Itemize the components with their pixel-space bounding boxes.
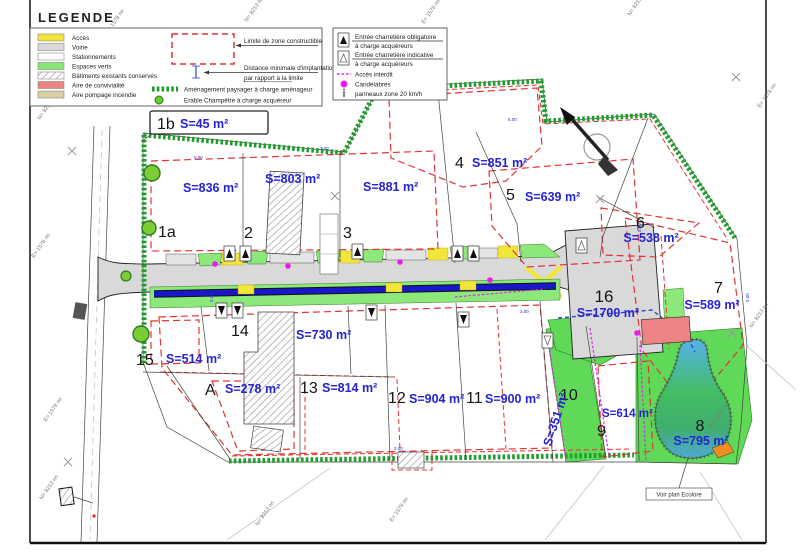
svg-text:à charge acquéreurs: à charge acquéreurs bbox=[355, 61, 413, 68]
svg-text:S=795 m²: S=795 m² bbox=[673, 434, 728, 448]
svg-text:Entrée charretière indicative: Entrée charretière indicative bbox=[355, 52, 434, 59]
candelabre-icon bbox=[487, 277, 493, 283]
grid-cross-icon bbox=[732, 73, 740, 81]
legend: LEGENDE Accès Voirie Stationnements Espa… bbox=[30, 10, 447, 106]
svg-text:5.00: 5.00 bbox=[209, 293, 214, 302]
svg-text:7: 7 bbox=[714, 280, 723, 297]
lot-label-12: 12 S=904 m² bbox=[388, 390, 464, 407]
legend-swatch-convivialite: Aire de convivialité bbox=[38, 82, 125, 90]
entry-obligatoire-icon bbox=[224, 246, 235, 261]
svg-text:S=1700 m²: S=1700 m² bbox=[577, 306, 639, 320]
svg-text:Distance minimale d'implantati: Distance minimale d'implantation bbox=[244, 65, 336, 72]
svg-text:Candélabres: Candélabres bbox=[355, 82, 391, 89]
svg-text:S=639 m²: S=639 m² bbox=[525, 190, 580, 204]
svg-text:3.00: 3.00 bbox=[320, 146, 329, 151]
offsite-building-1 bbox=[73, 302, 88, 320]
svg-text:Erable Champêtre à charge acqu: Erable Champêtre à charge acquéreur bbox=[184, 98, 291, 105]
entry-obligatoire-icon bbox=[232, 303, 243, 318]
candelabre-icon bbox=[397, 259, 403, 265]
building-lot3 bbox=[320, 214, 338, 274]
svg-text:Aire de convivialité: Aire de convivialité bbox=[72, 83, 125, 90]
svg-text:5: 5 bbox=[506, 187, 515, 204]
svg-text:3.00: 3.00 bbox=[520, 309, 529, 314]
svg-text:S=836 m²: S=836 m² bbox=[183, 181, 238, 195]
svg-text:Stationnements: Stationnements bbox=[72, 54, 116, 61]
svg-text:N= 8213 nn: N= 8213 nn bbox=[244, 0, 265, 23]
svg-text:4: 4 bbox=[455, 155, 464, 172]
svg-text:1a: 1a bbox=[158, 224, 176, 241]
legend-swatch-pompage: Aire pompage incendie bbox=[38, 91, 137, 99]
svg-text:N= 8213 nn: N= 8213 nn bbox=[749, 302, 770, 329]
svg-text:S=538 m²: S=538 m² bbox=[623, 231, 678, 245]
lot-label-11: 11 S=900 m² bbox=[466, 390, 540, 407]
svg-text:S=730 m²: S=730 m² bbox=[296, 328, 351, 342]
svg-text:E= 1578 nn: E= 1578 nn bbox=[389, 497, 410, 524]
entry-obligatoire-icon bbox=[216, 303, 227, 318]
svg-text:Limite de zone constructible: Limite de zone constructible bbox=[244, 38, 323, 45]
svg-text:8: 8 bbox=[696, 418, 705, 435]
svg-text:Bâtiments existants conservés: Bâtiments existants conservés bbox=[72, 73, 157, 80]
svg-text:E= 1578 nn: E= 1578 nn bbox=[421, 0, 442, 25]
svg-text:14: 14 bbox=[231, 323, 249, 340]
lot-label-1a: 1a S=836 m² bbox=[158, 181, 238, 241]
entry-indicative-icon bbox=[576, 238, 587, 253]
svg-text:15: 15 bbox=[136, 352, 154, 369]
svg-text:12: 12 bbox=[388, 390, 406, 407]
grid-cross-icon bbox=[331, 192, 339, 200]
svg-text:E= 1578 nn: E= 1578 nn bbox=[43, 397, 64, 424]
grid-cross-icon bbox=[64, 458, 72, 466]
tree-icon bbox=[133, 326, 149, 342]
legend-swatch-stationnements: Stationnements bbox=[38, 53, 116, 61]
svg-text:Espaces verts: Espaces verts bbox=[72, 64, 112, 71]
svg-text:E= 1578 nn: E= 1578 nn bbox=[31, 233, 52, 260]
entry-obligatoire-icon bbox=[366, 305, 377, 320]
subdivision-plan-page: 1b S=45 m² 1a S=836 m² 2 S=803 m² 3 S=88… bbox=[0, 0, 800, 555]
svg-text:S=614 m²: S=614 m² bbox=[602, 408, 653, 420]
svg-text:9: 9 bbox=[597, 423, 606, 440]
legend-title: LEGENDE bbox=[38, 10, 115, 25]
svg-text:Voirie: Voirie bbox=[72, 45, 88, 52]
building-lot13 bbox=[244, 312, 294, 424]
aire-convivialite bbox=[641, 316, 691, 344]
svg-text:Entrée charretière obligatoir: Entrée charretière obligatoire bbox=[355, 34, 437, 41]
entry-obligatoire-icon bbox=[468, 246, 479, 261]
site-plan-svg: 1b S=45 m² 1a S=836 m² 2 S=803 m² 3 S=88… bbox=[0, 0, 800, 555]
svg-text:N= 8213 nn: N= 8213 nn bbox=[255, 500, 276, 527]
candelabre-icon bbox=[212, 261, 218, 267]
building-south bbox=[251, 426, 284, 452]
entry-obligatoire-icon bbox=[352, 244, 363, 259]
svg-text:E= 1578 nn: E= 1578 nn bbox=[757, 83, 778, 110]
svg-text:N= 8213 nn: N= 8213 nn bbox=[39, 474, 60, 501]
svg-text:Aire pompage incendie: Aire pompage incendie bbox=[72, 92, 137, 99]
candelabre-icon bbox=[285, 263, 291, 269]
svg-text:11: 11 bbox=[466, 390, 483, 407]
building-lot-a-ext bbox=[398, 452, 424, 468]
lot-label-4: 4 S=851 m² bbox=[455, 155, 527, 172]
candelabre-icon bbox=[634, 330, 640, 336]
svg-text:5.00: 5.00 bbox=[745, 293, 750, 302]
svg-text:3: 3 bbox=[343, 225, 352, 242]
entry-obligatoire-icon bbox=[240, 246, 251, 261]
svg-text:S=45 m²: S=45 m² bbox=[180, 117, 228, 131]
entry-obligatoire-icon bbox=[452, 246, 463, 261]
svg-text:S=900 m²: S=900 m² bbox=[485, 392, 540, 406]
legend-swatch-batiments: Bâtiments existants conservés bbox=[38, 72, 157, 80]
legend-swatch-acces: Accès bbox=[38, 34, 89, 42]
svg-text:1b: 1b bbox=[157, 116, 175, 133]
legend-swatch-espaces-verts: Espaces verts bbox=[38, 63, 112, 71]
entry-obligatoire-icon bbox=[458, 312, 469, 327]
svg-text:5.00: 5.00 bbox=[637, 223, 642, 232]
tree-icon bbox=[121, 271, 131, 281]
trees bbox=[121, 165, 160, 342]
svg-text:Aménagement paysager à charge: Aménagement paysager à charge aménageur bbox=[184, 87, 312, 94]
svg-text:Voir plan Ecolore: Voir plan Ecolore bbox=[656, 493, 702, 499]
svg-text:2: 2 bbox=[244, 225, 253, 242]
svg-text:16: 16 bbox=[595, 287, 614, 306]
legend-swatch-voirie: Voirie bbox=[38, 44, 88, 52]
svg-text:S=881 m²: S=881 m² bbox=[363, 180, 418, 194]
lot-label-5: 5 S=639 m² bbox=[506, 187, 580, 204]
svg-text:13: 13 bbox=[300, 380, 318, 397]
svg-text:S=851 m²: S=851 m² bbox=[472, 156, 527, 170]
svg-text:S=814 m²: S=814 m² bbox=[322, 381, 377, 395]
svg-text:5.00: 5.00 bbox=[508, 117, 517, 122]
svg-text:Accès: Accès bbox=[72, 35, 89, 42]
offsite-building-2 bbox=[59, 487, 74, 506]
svg-text:par rapport à la limite: par rapport à la limite bbox=[244, 75, 304, 82]
tree-icon bbox=[144, 165, 160, 181]
entry-indicative-icon bbox=[542, 333, 553, 348]
lot-label-3: 3 S=881 m² bbox=[343, 180, 418, 242]
svg-text:A: A bbox=[205, 382, 216, 399]
svg-text:N= 8213 nn: N= 8213 nn bbox=[627, 0, 648, 17]
tree-icon bbox=[142, 221, 156, 235]
svg-text:S=803 m²: S=803 m² bbox=[265, 172, 320, 186]
svg-text:S=514 m²: S=514 m² bbox=[166, 352, 221, 366]
svg-text:5.00: 5.00 bbox=[194, 155, 203, 160]
svg-text:3.00: 3.00 bbox=[394, 446, 403, 451]
svg-text:panneaux zone 20 km/h: panneaux zone 20 km/h bbox=[355, 91, 423, 98]
svg-text:Accès interdit: Accès interdit bbox=[355, 72, 393, 79]
grid-cross-icon bbox=[68, 147, 76, 155]
grid-cross-icon bbox=[596, 195, 604, 203]
svg-text:à charge acquéreurs: à charge acquéreurs bbox=[355, 43, 413, 50]
svg-text:S=904 m²: S=904 m² bbox=[409, 392, 464, 406]
lot-label-13: 13 S=814 m² bbox=[300, 380, 377, 397]
lot-label-7: 7 S=589 m² bbox=[684, 280, 739, 312]
svg-text:S=589 m²: S=589 m² bbox=[684, 298, 739, 312]
see-plan-note: Voir plan Ecolore bbox=[646, 458, 712, 500]
svg-text:S=278 m²: S=278 m² bbox=[225, 382, 280, 396]
